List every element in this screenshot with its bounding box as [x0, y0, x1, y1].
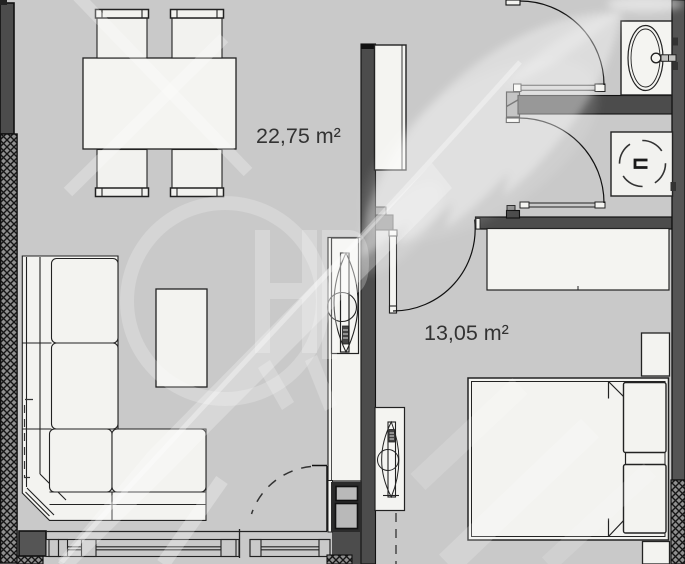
- svg-text:22,75 m²: 22,75 m²: [256, 124, 341, 148]
- svg-text:13,05 m²: 13,05 m²: [424, 321, 509, 345]
